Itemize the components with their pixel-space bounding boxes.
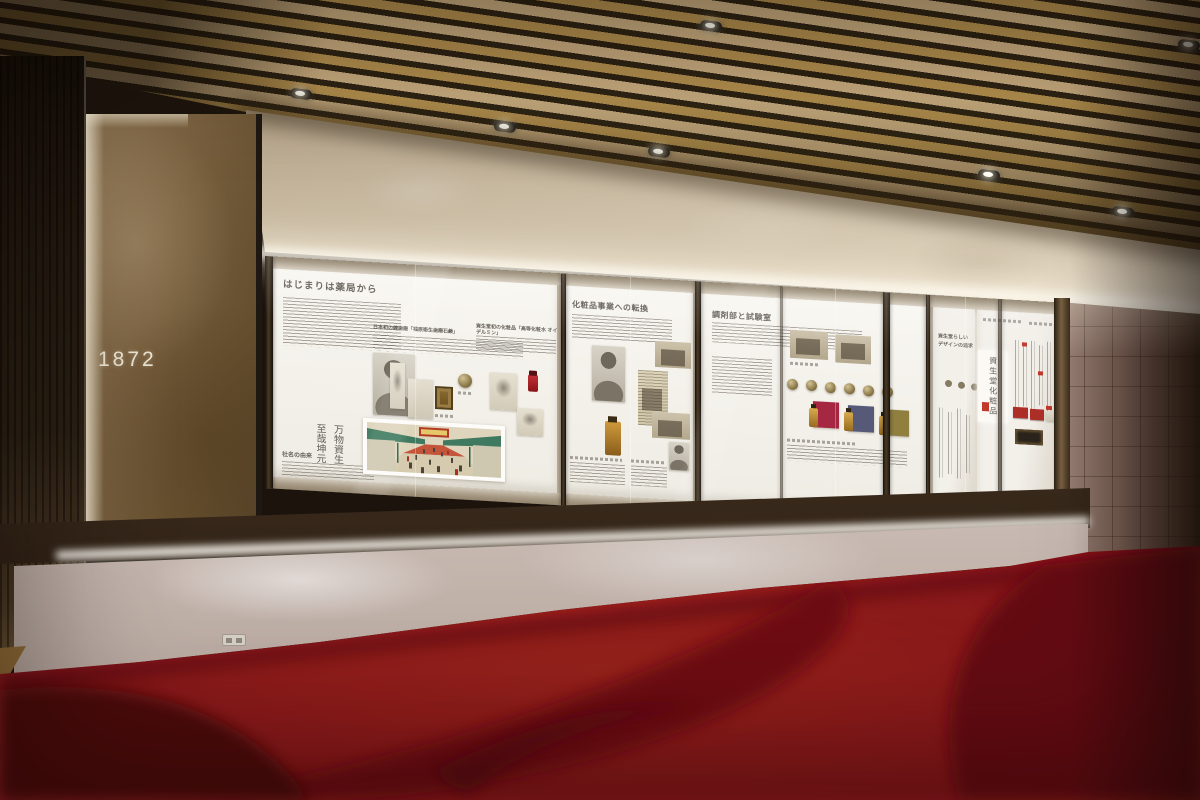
- exhibition-room-photo: 1872 はじまりは薬局から 日本初の練歯磨「福原衛生歯磨石鹸」 至哉坤元 万物…: [0, 0, 1200, 800]
- red-carpet: [0, 0, 1200, 800]
